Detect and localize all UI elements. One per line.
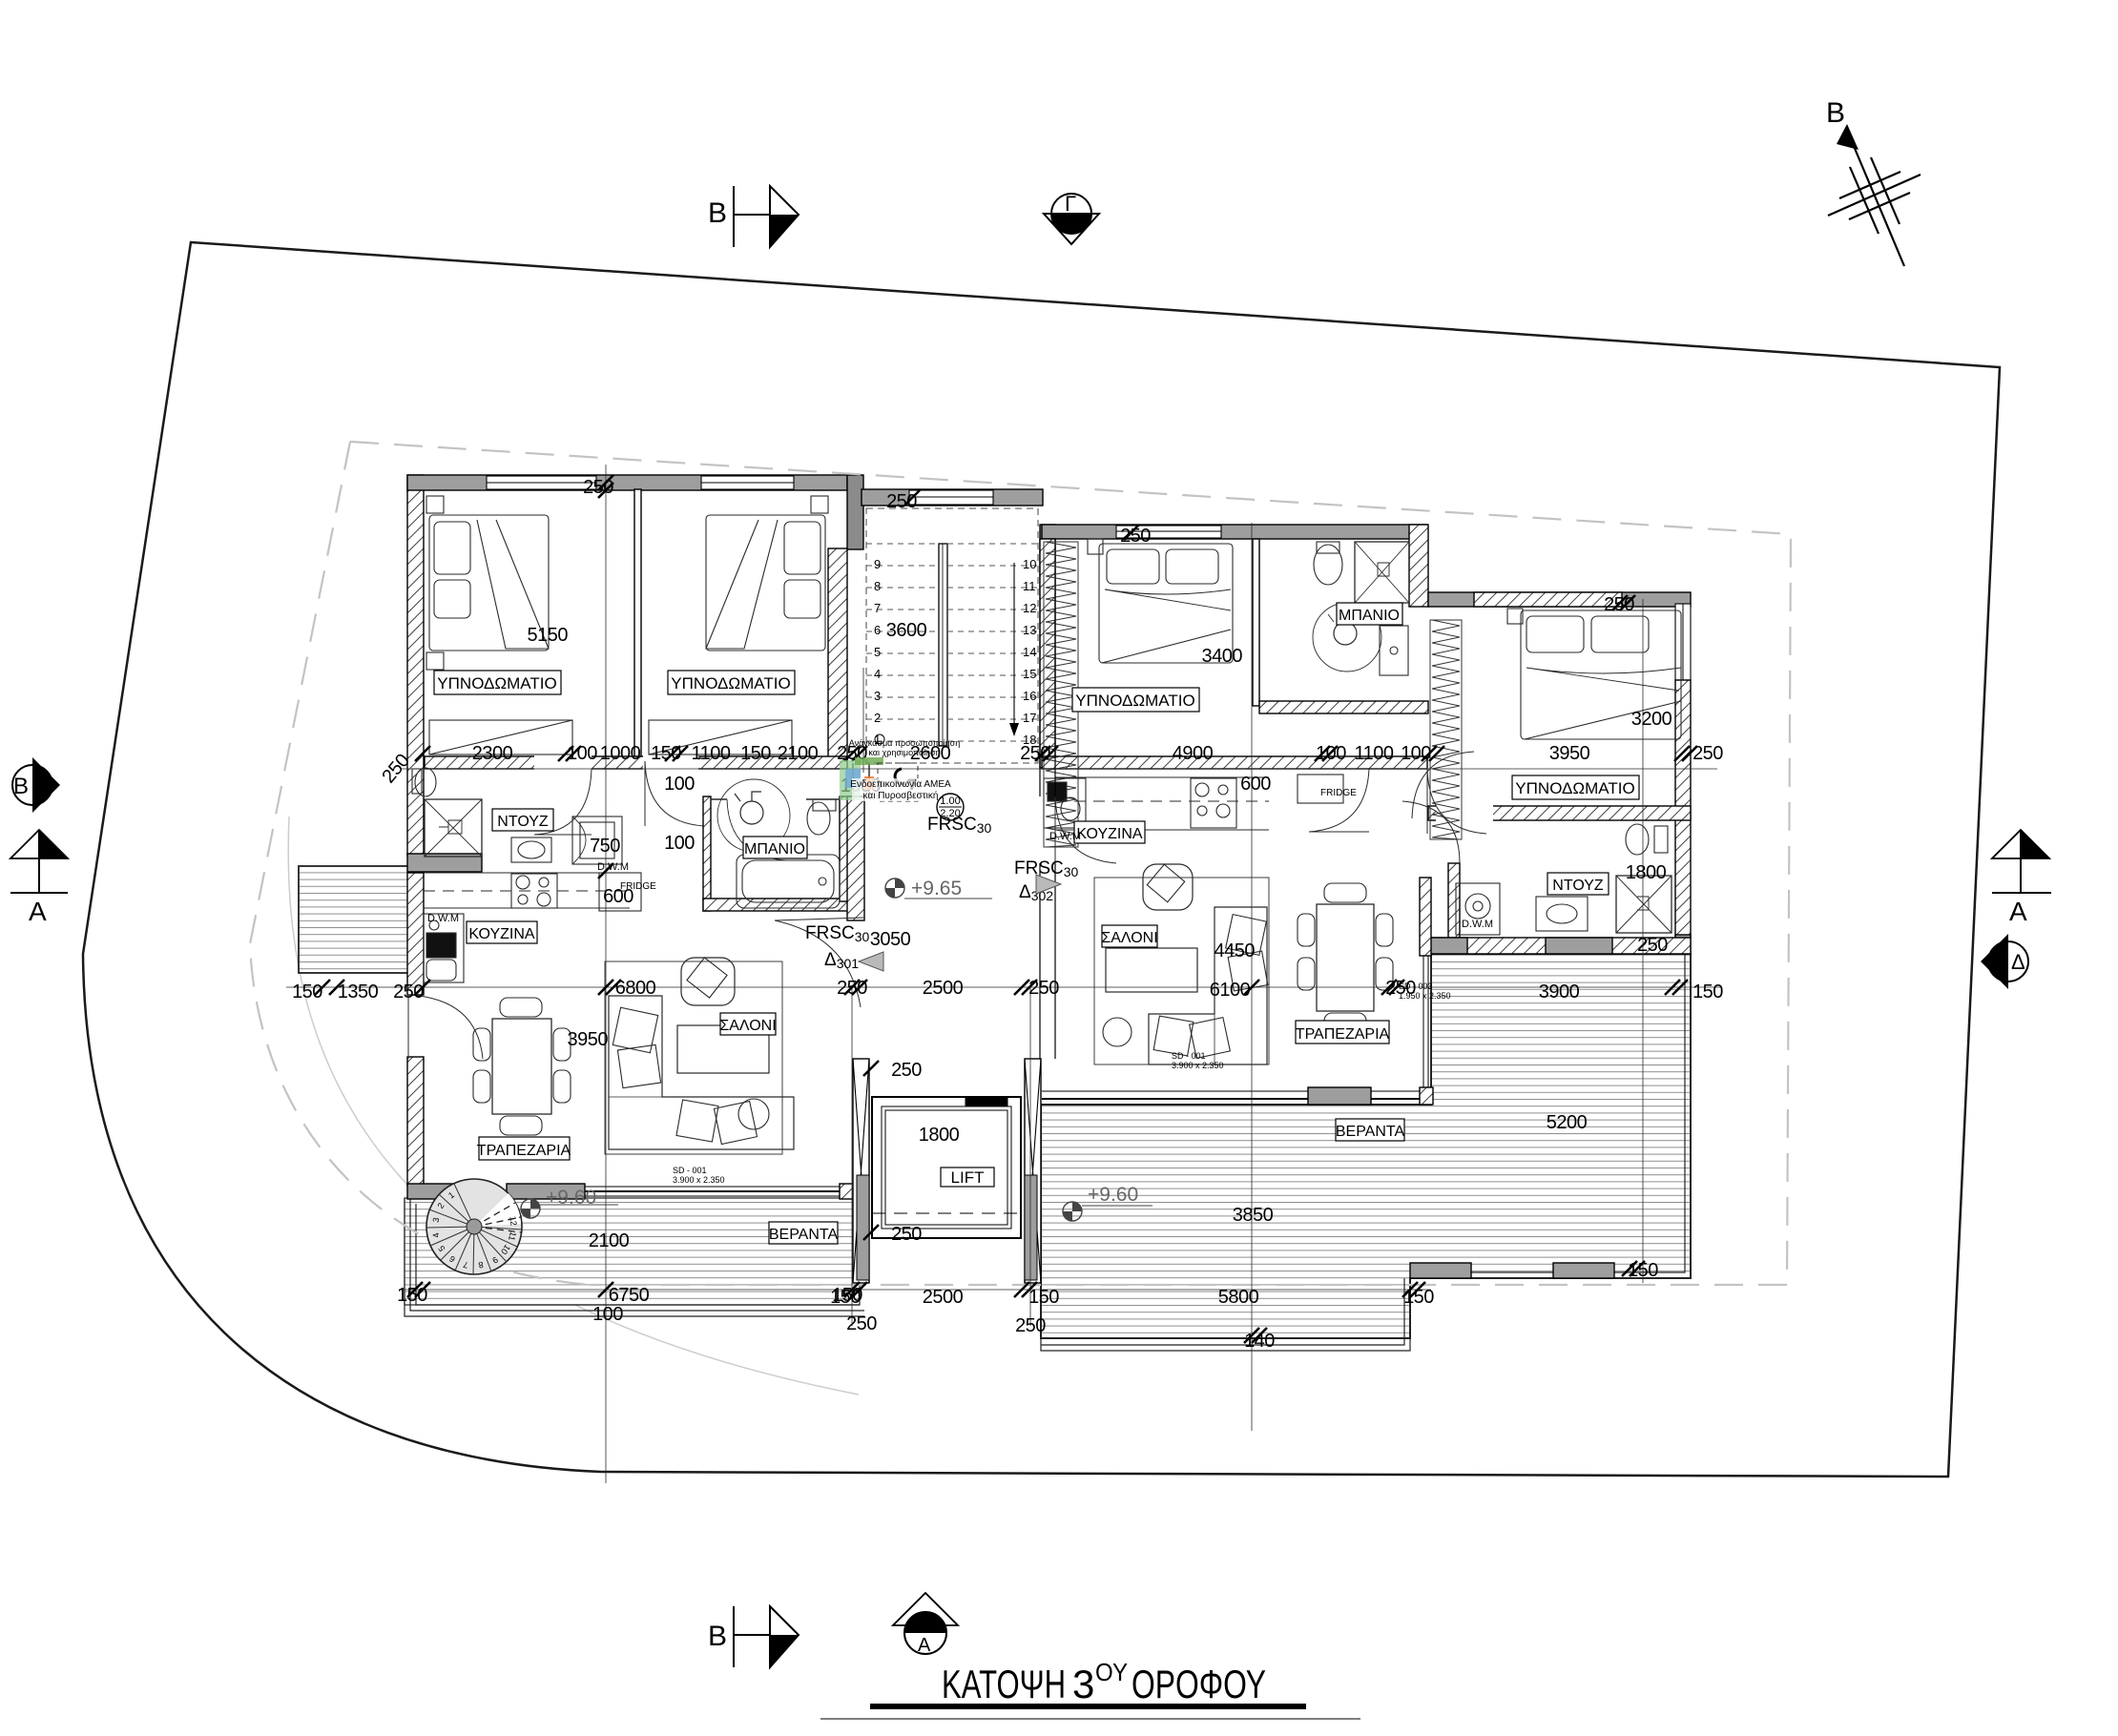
svg-text:+9.65: +9.65 [911, 878, 962, 899]
svg-text:3: 3 [874, 689, 881, 703]
svg-text:SD - 003: SD - 003 [1399, 982, 1433, 991]
svg-text:ΤΡΑΠΕΖΑΡΙΑ: ΤΡΑΠΕΖΑΡΙΑ [477, 1143, 571, 1159]
svg-text:3050: 3050 [870, 929, 911, 950]
svg-text:4900: 4900 [1173, 743, 1214, 764]
svg-text:16: 16 [1023, 689, 1036, 703]
svg-text:ΤΡΑΠΕΖΑΡΙΑ: ΤΡΑΠΕΖΑΡΙΑ [1296, 1026, 1390, 1043]
svg-text:100: 100 [1401, 743, 1431, 764]
svg-text:12: 12 [508, 1215, 518, 1226]
svg-text:250: 250 [886, 491, 917, 512]
svg-text:1.00: 1.00 [940, 796, 960, 807]
svg-text:3400: 3400 [1202, 646, 1243, 667]
svg-text:SD - 001: SD - 001 [673, 1166, 707, 1175]
svg-text:ΒΕΡΑΝΤΑ: ΒΕΡΑΝΤΑ [769, 1227, 839, 1243]
svg-text:6: 6 [874, 623, 881, 637]
svg-text:100: 100 [1316, 743, 1346, 764]
svg-text:ΜΠΑΝΙΟ: ΜΠΑΝΙΟ [1339, 608, 1400, 624]
svg-text:3200: 3200 [1631, 709, 1672, 730]
svg-text:150: 150 [292, 982, 322, 1002]
svg-text:9: 9 [874, 557, 881, 571]
svg-text:750: 750 [590, 836, 620, 857]
svg-text:100: 100 [592, 1304, 623, 1325]
svg-text:5200: 5200 [1547, 1112, 1588, 1133]
svg-text:5: 5 [874, 645, 881, 659]
svg-text:250: 250 [1120, 526, 1151, 547]
svg-text:250: 250 [1637, 935, 1668, 956]
svg-text:5150: 5150 [528, 625, 569, 646]
svg-text:SD - 001: SD - 001 [1172, 1051, 1206, 1061]
svg-text:150: 150 [1028, 1287, 1059, 1308]
svg-text:1100: 1100 [1354, 743, 1393, 764]
svg-text:11: 11 [1023, 579, 1036, 593]
svg-text:3600: 3600 [886, 620, 927, 641]
svg-text:150: 150 [397, 1285, 427, 1306]
svg-text:10: 10 [1023, 557, 1036, 571]
svg-text:1.950 x 2.350: 1.950 x 2.350 [1399, 991, 1451, 1001]
svg-text:250: 250 [846, 1313, 877, 1334]
svg-text:150: 150 [740, 743, 771, 764]
svg-text:B: B [13, 774, 29, 799]
svg-text:B: B [1826, 97, 1845, 129]
svg-text:D.W.M: D.W.M [427, 913, 459, 924]
svg-text:ΚΟΥΖΙΝΑ: ΚΟΥΖΙΝΑ [1076, 826, 1143, 842]
svg-text:ΥΠΝΟΔΩΜΑΤΙΟ: ΥΠΝΟΔΩΜΑΤΙΟ [1515, 779, 1634, 797]
svg-text:100: 100 [664, 774, 695, 795]
svg-text:ΜΠΑΝΙΟ: ΜΠΑΝΙΟ [744, 841, 805, 858]
svg-text:140: 140 [1244, 1331, 1275, 1352]
svg-text:Δ301: Δ301 [824, 950, 859, 971]
svg-text:150: 150 [1628, 1260, 1658, 1281]
svg-text:D.W.M: D.W.M [597, 861, 629, 873]
svg-text:6800: 6800 [615, 978, 656, 999]
svg-text:ΣΑΛΟΝΙ: ΣΑΛΟΝΙ [719, 1018, 776, 1034]
svg-text:FRSC30: FRSC30 [805, 923, 870, 944]
svg-text:150: 150 [832, 1285, 862, 1306]
svg-text:3900: 3900 [1539, 982, 1580, 1002]
svg-text:4450: 4450 [1215, 940, 1256, 961]
svg-text:3.900 x 2.350: 3.900 x 2.350 [673, 1175, 725, 1185]
svg-text:3.900 x 2.350: 3.900 x 2.350 [1172, 1061, 1224, 1070]
svg-text:ΟΡΟΦΟΥ: ΟΡΟΦΟΥ [1132, 1662, 1266, 1706]
svg-text:250: 250 [891, 1224, 922, 1245]
svg-text:250: 250 [1020, 743, 1050, 764]
svg-text:B: B [708, 1621, 727, 1652]
svg-text:6100: 6100 [1210, 980, 1251, 1001]
svg-text:FRIDGE: FRIDGE [620, 881, 656, 892]
svg-text:D.W.M: D.W.M [1462, 919, 1493, 930]
svg-text:και χρησιμοποίηση: και χρησιμοποίηση [868, 748, 940, 757]
svg-text:150: 150 [1403, 1287, 1434, 1308]
svg-text:2: 2 [874, 711, 881, 725]
svg-text:Ενδοεπικοινωνία ΑΜΕΑ: Ενδοεπικοινωνία ΑΜΕΑ [850, 778, 951, 790]
svg-text:ΝΤΟΥΖ: ΝΤΟΥΖ [497, 814, 549, 830]
svg-text:150: 150 [1692, 982, 1723, 1002]
svg-text:7: 7 [874, 601, 881, 615]
svg-text:1800: 1800 [919, 1125, 960, 1146]
svg-text:250: 250 [1015, 1315, 1046, 1336]
svg-text:A: A [918, 1635, 931, 1656]
svg-text:ΚΑΤΟΨΗ: ΚΑΤΟΨΗ [942, 1662, 1066, 1706]
svg-text:1800: 1800 [1626, 862, 1667, 883]
svg-text:17: 17 [1023, 711, 1036, 725]
svg-text:ΥΠΝΟΔΩΜΑΤΙΟ: ΥΠΝΟΔΩΜΑΤΙΟ [1075, 692, 1194, 710]
svg-text:A: A [2009, 897, 2027, 926]
svg-text:14: 14 [1023, 645, 1036, 659]
svg-text:250: 250 [583, 477, 613, 498]
svg-text:3850: 3850 [1233, 1205, 1274, 1226]
svg-text:2300: 2300 [472, 743, 513, 764]
svg-text:250: 250 [891, 1060, 922, 1081]
svg-text:Δ: Δ [2011, 950, 2025, 974]
svg-text:ΥΠΝΟΔΩΜΑΤΙΟ: ΥΠΝΟΔΩΜΑΤΙΟ [437, 674, 556, 692]
svg-text:4: 4 [874, 667, 881, 681]
svg-text:250: 250 [837, 978, 867, 999]
svg-text:1000: 1000 [600, 743, 641, 764]
svg-text:150: 150 [651, 743, 681, 764]
svg-text:ΥΠΝΟΔΩΜΑΤΙΟ: ΥΠΝΟΔΩΜΑΤΙΟ [671, 674, 790, 692]
svg-text:και Πυροσβεστική: και Πυροσβεστική [863, 790, 939, 801]
svg-text:B: B [708, 197, 727, 229]
svg-text:100: 100 [664, 833, 695, 854]
svg-text:2500: 2500 [923, 1287, 964, 1308]
svg-text:250: 250 [393, 982, 424, 1002]
svg-text:250: 250 [1692, 743, 1723, 764]
svg-text:ΟΥ: ΟΥ [1095, 1658, 1128, 1686]
svg-text:FRIDGE: FRIDGE [1320, 788, 1357, 798]
svg-text:ΝΤΟΥΖ: ΝΤΟΥΖ [1552, 878, 1604, 894]
svg-text:ΒΕΡΑΝΤΑ: ΒΕΡΑΝΤΑ [1336, 1124, 1405, 1140]
svg-text:5800: 5800 [1218, 1287, 1259, 1308]
svg-text:3950: 3950 [568, 1029, 609, 1050]
svg-text:250: 250 [1604, 594, 1634, 615]
svg-text:FRSC30: FRSC30 [1014, 858, 1079, 879]
svg-text:8: 8 [874, 579, 881, 593]
svg-text:1350: 1350 [338, 982, 379, 1002]
svg-text:LIFT: LIFT [951, 1168, 985, 1187]
svg-text:Ανάγκασμα προσωποποίηση: Ανάγκασμα προσωποποίηση [849, 738, 960, 748]
svg-text:15: 15 [1023, 667, 1036, 681]
svg-text:+9.60: +9.60 [546, 1187, 596, 1209]
svg-text:2100: 2100 [589, 1230, 630, 1251]
svg-text:3: 3 [1072, 1662, 1094, 1706]
svg-text:Γ: Γ [1065, 192, 1076, 216]
svg-text:100: 100 [567, 743, 597, 764]
svg-text:600: 600 [1240, 774, 1271, 795]
svg-text:6750: 6750 [609, 1285, 650, 1306]
svg-text:2500: 2500 [923, 978, 964, 999]
svg-text:3950: 3950 [1549, 743, 1590, 764]
svg-text:ΣΑΛΟΝΙ: ΣΑΛΟΝΙ [1101, 930, 1157, 946]
svg-text:A: A [29, 897, 47, 926]
svg-text:2.20: 2.20 [940, 808, 960, 819]
svg-text:+9.60: +9.60 [1088, 1184, 1138, 1206]
svg-text:1100: 1100 [691, 743, 730, 764]
svg-text:12: 12 [1023, 601, 1036, 615]
svg-text:250: 250 [1028, 978, 1059, 999]
svg-text:13: 13 [1023, 623, 1036, 637]
svg-text:ΚΟΥΖΙΝΑ: ΚΟΥΖΙΝΑ [468, 926, 535, 942]
svg-text:2100: 2100 [778, 743, 819, 764]
svg-text:D.W.M: D.W.M [1049, 831, 1081, 842]
